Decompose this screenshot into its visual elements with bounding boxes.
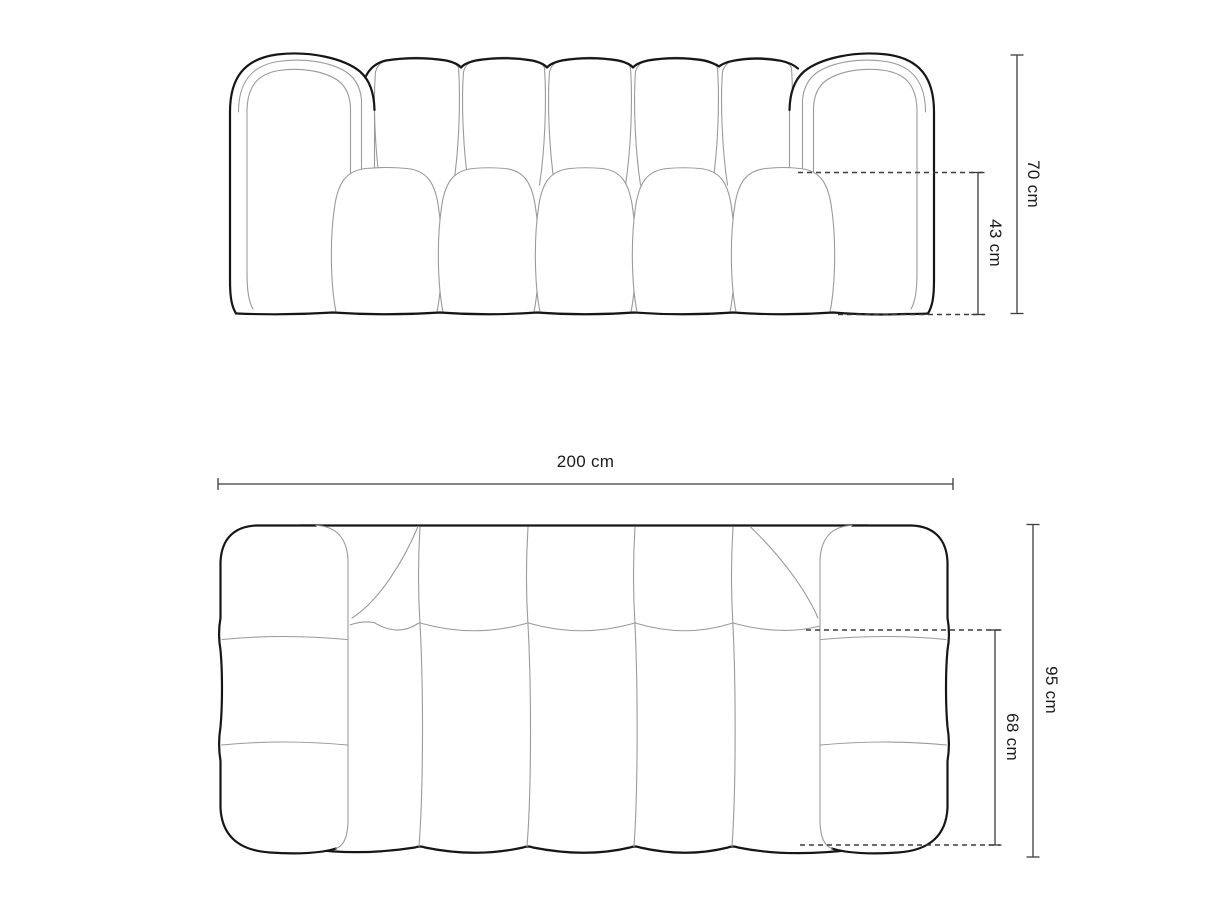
front-bottom-edge xyxy=(237,313,928,315)
front-seat-cushions xyxy=(331,168,834,313)
plan-seams xyxy=(350,527,820,847)
plan-front-edge xyxy=(310,847,858,854)
dimension-diagram-canvas: 43 cm 70 cm 200 cm xyxy=(0,0,1214,910)
plan-left-armrest xyxy=(219,526,348,854)
dim-total-width: 200 cm xyxy=(218,452,953,490)
top-view-drawing: 200 cm xyxy=(218,452,1061,857)
dim-seat-depth: 68 cm xyxy=(989,630,1023,845)
dim-label-seat-height: 43 cm xyxy=(986,219,1005,267)
dim-total-height: 70 cm xyxy=(1011,55,1044,314)
diagram-svg: 43 cm 70 cm 200 cm xyxy=(0,0,1214,910)
dim-label-total-depth: 95 cm xyxy=(1042,666,1061,714)
dim-label-seat-depth: 68 cm xyxy=(1003,713,1022,761)
front-backrest-cushions xyxy=(374,57,792,185)
dim-seat-height: 43 cm xyxy=(972,173,1006,315)
front-view-drawing: 43 cm 70 cm xyxy=(230,53,1043,314)
dim-label-total-height: 70 cm xyxy=(1024,160,1043,208)
front-backrest-top-edge xyxy=(366,58,798,76)
dim-total-depth: 95 cm xyxy=(1027,525,1062,858)
plan-right-armrest xyxy=(820,526,949,854)
dim-label-total-width: 200 cm xyxy=(557,452,615,471)
